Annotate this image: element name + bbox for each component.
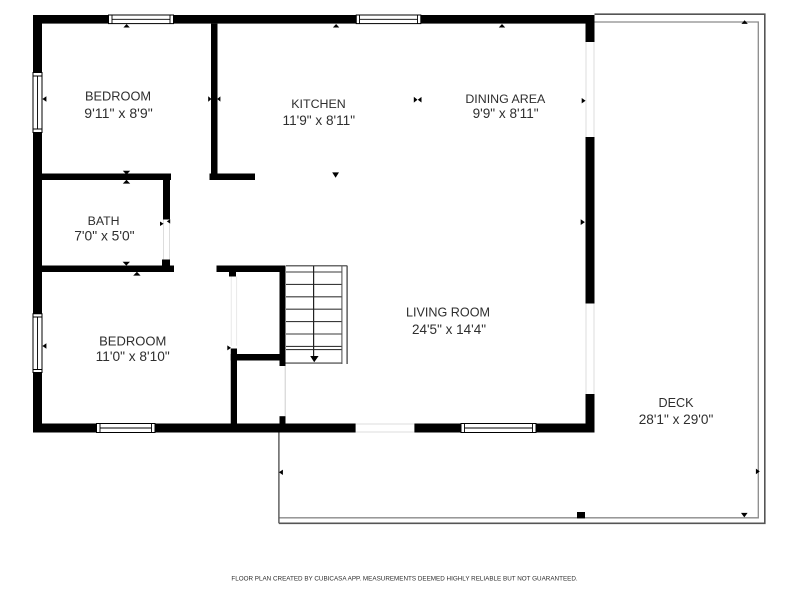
- svg-text:11'0" x 8'10": 11'0" x 8'10": [96, 349, 170, 364]
- svg-text:BATH: BATH: [88, 214, 120, 228]
- svg-text:11'9" x 8'11": 11'9" x 8'11": [283, 113, 356, 128]
- svg-text:KITCHEN: KITCHEN: [291, 97, 345, 111]
- svg-text:FLOOR PLAN CREATED BY CUBICASA: FLOOR PLAN CREATED BY CUBICASA APP. MEAS…: [231, 575, 578, 582]
- svg-text:28'1" x 29'0": 28'1" x 29'0": [639, 412, 714, 427]
- svg-text:BEDROOM: BEDROOM: [85, 88, 151, 103]
- svg-text:DECK: DECK: [659, 396, 695, 410]
- svg-text:DINING AREA: DINING AREA: [465, 92, 546, 106]
- svg-text:LIVING ROOM: LIVING ROOM: [406, 306, 490, 320]
- svg-text:7'0" x 5'0": 7'0" x 5'0": [74, 229, 134, 244]
- svg-text:9'11" x 8'9": 9'11" x 8'9": [84, 105, 152, 121]
- svg-text:24'5" x 14'4": 24'5" x 14'4": [412, 322, 486, 337]
- svg-text:9'9" x 8'11": 9'9" x 8'11": [473, 106, 539, 121]
- svg-text:BEDROOM: BEDROOM: [99, 334, 166, 349]
